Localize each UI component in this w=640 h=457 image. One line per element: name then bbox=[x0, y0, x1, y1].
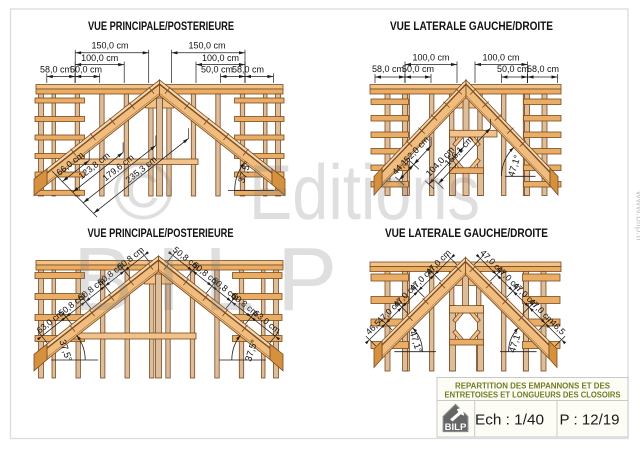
svg-text:50,0 cm: 50,0 cm bbox=[497, 64, 529, 74]
svg-text:50,0 cm: 50,0 cm bbox=[402, 64, 434, 74]
svg-text:100,0 cm: 100,0 cm bbox=[482, 53, 519, 63]
svg-text:www.bilp.fr: www.bilp.fr bbox=[634, 190, 640, 242]
svg-text:ENTRETOISES ET LONGUEURS DES C: ENTRETOISES ET LONGUEURS DES CLOSOIRS bbox=[445, 390, 621, 400]
svg-text:58,0 cm: 58,0 cm bbox=[372, 64, 404, 74]
svg-text:P : 12/19: P : 12/19 bbox=[560, 412, 620, 429]
svg-text:150,0 cm: 150,0 cm bbox=[188, 41, 225, 51]
svg-text:58,0 cm: 58,0 cm bbox=[527, 64, 559, 74]
svg-text:100,0 cm: 100,0 cm bbox=[412, 53, 449, 63]
svg-text:100,0 cm: 100,0 cm bbox=[202, 53, 239, 63]
svg-text:BILP: BILP bbox=[73, 230, 360, 330]
svg-text:Ech : 1/40: Ech : 1/40 bbox=[475, 412, 544, 429]
svg-text:150,0 cm: 150,0 cm bbox=[91, 41, 128, 51]
svg-text:BILP: BILP bbox=[445, 422, 467, 433]
svg-text:VUE LATERALE GAUCHE/DROITE: VUE LATERALE GAUCHE/DROITE bbox=[390, 21, 553, 33]
svg-text:100,0 cm: 100,0 cm bbox=[81, 53, 118, 63]
svg-text:58,0 cm: 58,0 cm bbox=[232, 65, 264, 75]
svg-text:VUE PRINCIPALE/POSTERIEURE: VUE PRINCIPALE/POSTERIEURE bbox=[88, 21, 234, 33]
svg-text:58,0 cm: 58,0 cm bbox=[40, 65, 72, 75]
svg-text:50,0 cm: 50,0 cm bbox=[201, 65, 233, 75]
svg-text:50,0 cm: 50,0 cm bbox=[70, 65, 102, 75]
svg-text:Editions: Editions bbox=[249, 148, 480, 236]
svg-text:©: © bbox=[113, 146, 173, 237]
